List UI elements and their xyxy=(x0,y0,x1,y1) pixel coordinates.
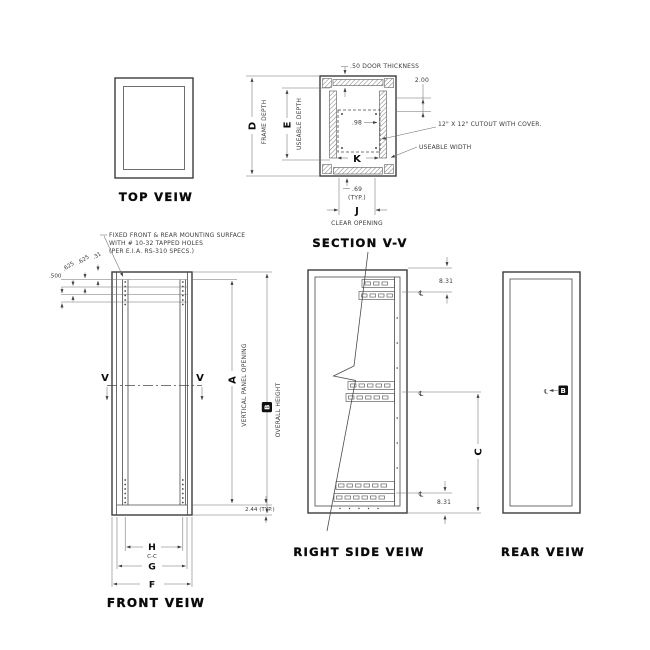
mounting-note-line3: (PER E.I.A. RS-310 SPECS.) xyxy=(109,248,194,255)
section-door-strip xyxy=(333,80,383,86)
panel-opening-label: VERTICAL PANEL OPENING xyxy=(241,343,248,427)
cutout-corner-hole xyxy=(341,113,343,115)
right-side-view-title: RIGHT SIDE VEIW xyxy=(293,545,424,559)
dim-831-bottom: 8.31 xyxy=(437,499,451,506)
section-bottom-wall xyxy=(334,168,383,175)
dim-2-00-value: 2.00 xyxy=(415,77,429,84)
overall-height-label: OVERALL HEIGHT xyxy=(275,382,282,437)
dim-500: .500 xyxy=(49,274,62,280)
dim-69-typ: (TYP.) xyxy=(348,195,366,202)
rear-view-title: REAR VEIW xyxy=(501,545,585,559)
useable-width-label: USEABLE WIDTH xyxy=(419,144,471,151)
section-cut-letter-right: V xyxy=(196,373,204,384)
dim-margin-value: 2.44 (TYP.) xyxy=(245,507,275,513)
cutout-corner-hole xyxy=(341,147,343,149)
rear-centerline-symbol: ℄ xyxy=(544,389,548,396)
useable-depth-label: USEABLE DEPTH xyxy=(296,98,303,150)
clear-opening-label: CLEAR OPENING xyxy=(331,220,383,227)
rear-ref-letter: B xyxy=(561,387,566,395)
mounting-note-line2: WITH # 10-32 TAPPED HOLES xyxy=(109,240,203,247)
section-corner-bracket xyxy=(385,165,394,174)
frame-depth-label: FRAME DEPTH xyxy=(261,100,268,145)
dim-98-value: .98 xyxy=(352,120,362,127)
centerline-symbol-top: ℄ xyxy=(419,290,424,298)
front-view-title: FRONT VEIW xyxy=(107,596,205,610)
dim-c-letter: C xyxy=(474,448,485,455)
useable-width-letter: K xyxy=(353,154,362,165)
mounting-note-line1: FIXED FRONT & REAR MOUNTING SURFACE xyxy=(109,232,245,239)
panel-opening-letter: A xyxy=(228,376,239,384)
frame-depth-letter: D xyxy=(248,122,259,130)
section-left-wall xyxy=(330,91,337,158)
dim-69-value: .69 xyxy=(352,186,362,193)
cutout-note-label: 12" X 12" CUTOUT WITH COVER. xyxy=(438,121,542,128)
section-corner-bracket xyxy=(323,165,332,174)
useable-depth-letter: E xyxy=(283,121,294,128)
section-corner-bracket xyxy=(323,79,332,88)
section-cut-letter-left: V xyxy=(101,373,109,384)
engineering-drawing: TOP VEIW D FRAME DEPTH xyxy=(0,0,650,650)
section-right-wall xyxy=(380,91,387,158)
overall-height-letter: B xyxy=(264,405,272,410)
section-title: SECTION V-V xyxy=(312,236,407,250)
section-corner-bracket xyxy=(385,79,394,88)
dim-h-sub: C-C xyxy=(147,554,157,560)
clear-opening-letter: J xyxy=(354,206,359,217)
cutout-corner-hole xyxy=(375,113,377,115)
top-view-title: TOP VEIW xyxy=(119,190,193,204)
drawing-page: TOP VEIW D FRAME DEPTH xyxy=(0,0,650,650)
dim-g-letter: G xyxy=(148,562,156,573)
centerline-symbol-mid: ℄ xyxy=(419,390,424,398)
dim-831-top: 8.31 xyxy=(439,278,453,285)
cutout-corner-hole xyxy=(375,147,377,149)
dim-f-letter: F xyxy=(149,580,155,591)
centerline-symbol-bottom: ℄ xyxy=(419,491,424,499)
dim-h-letter: H xyxy=(148,542,156,553)
door-thickness-label: .50 DOOR THICKNESS xyxy=(350,63,419,70)
